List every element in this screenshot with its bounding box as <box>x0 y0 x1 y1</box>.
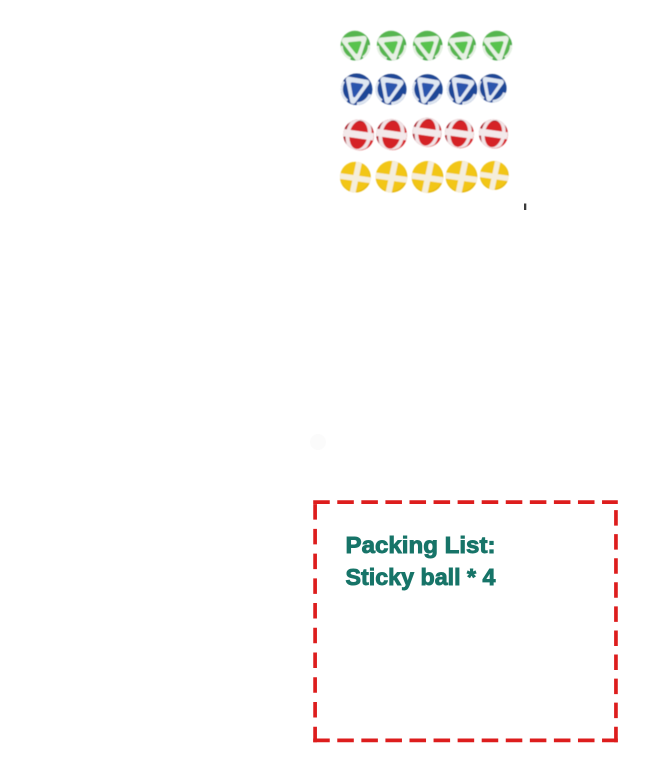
svg-text:Sticky ball * 4: Sticky ball * 4 <box>346 564 496 590</box>
svg-text:Packing List:: Packing List: <box>346 532 496 558</box>
